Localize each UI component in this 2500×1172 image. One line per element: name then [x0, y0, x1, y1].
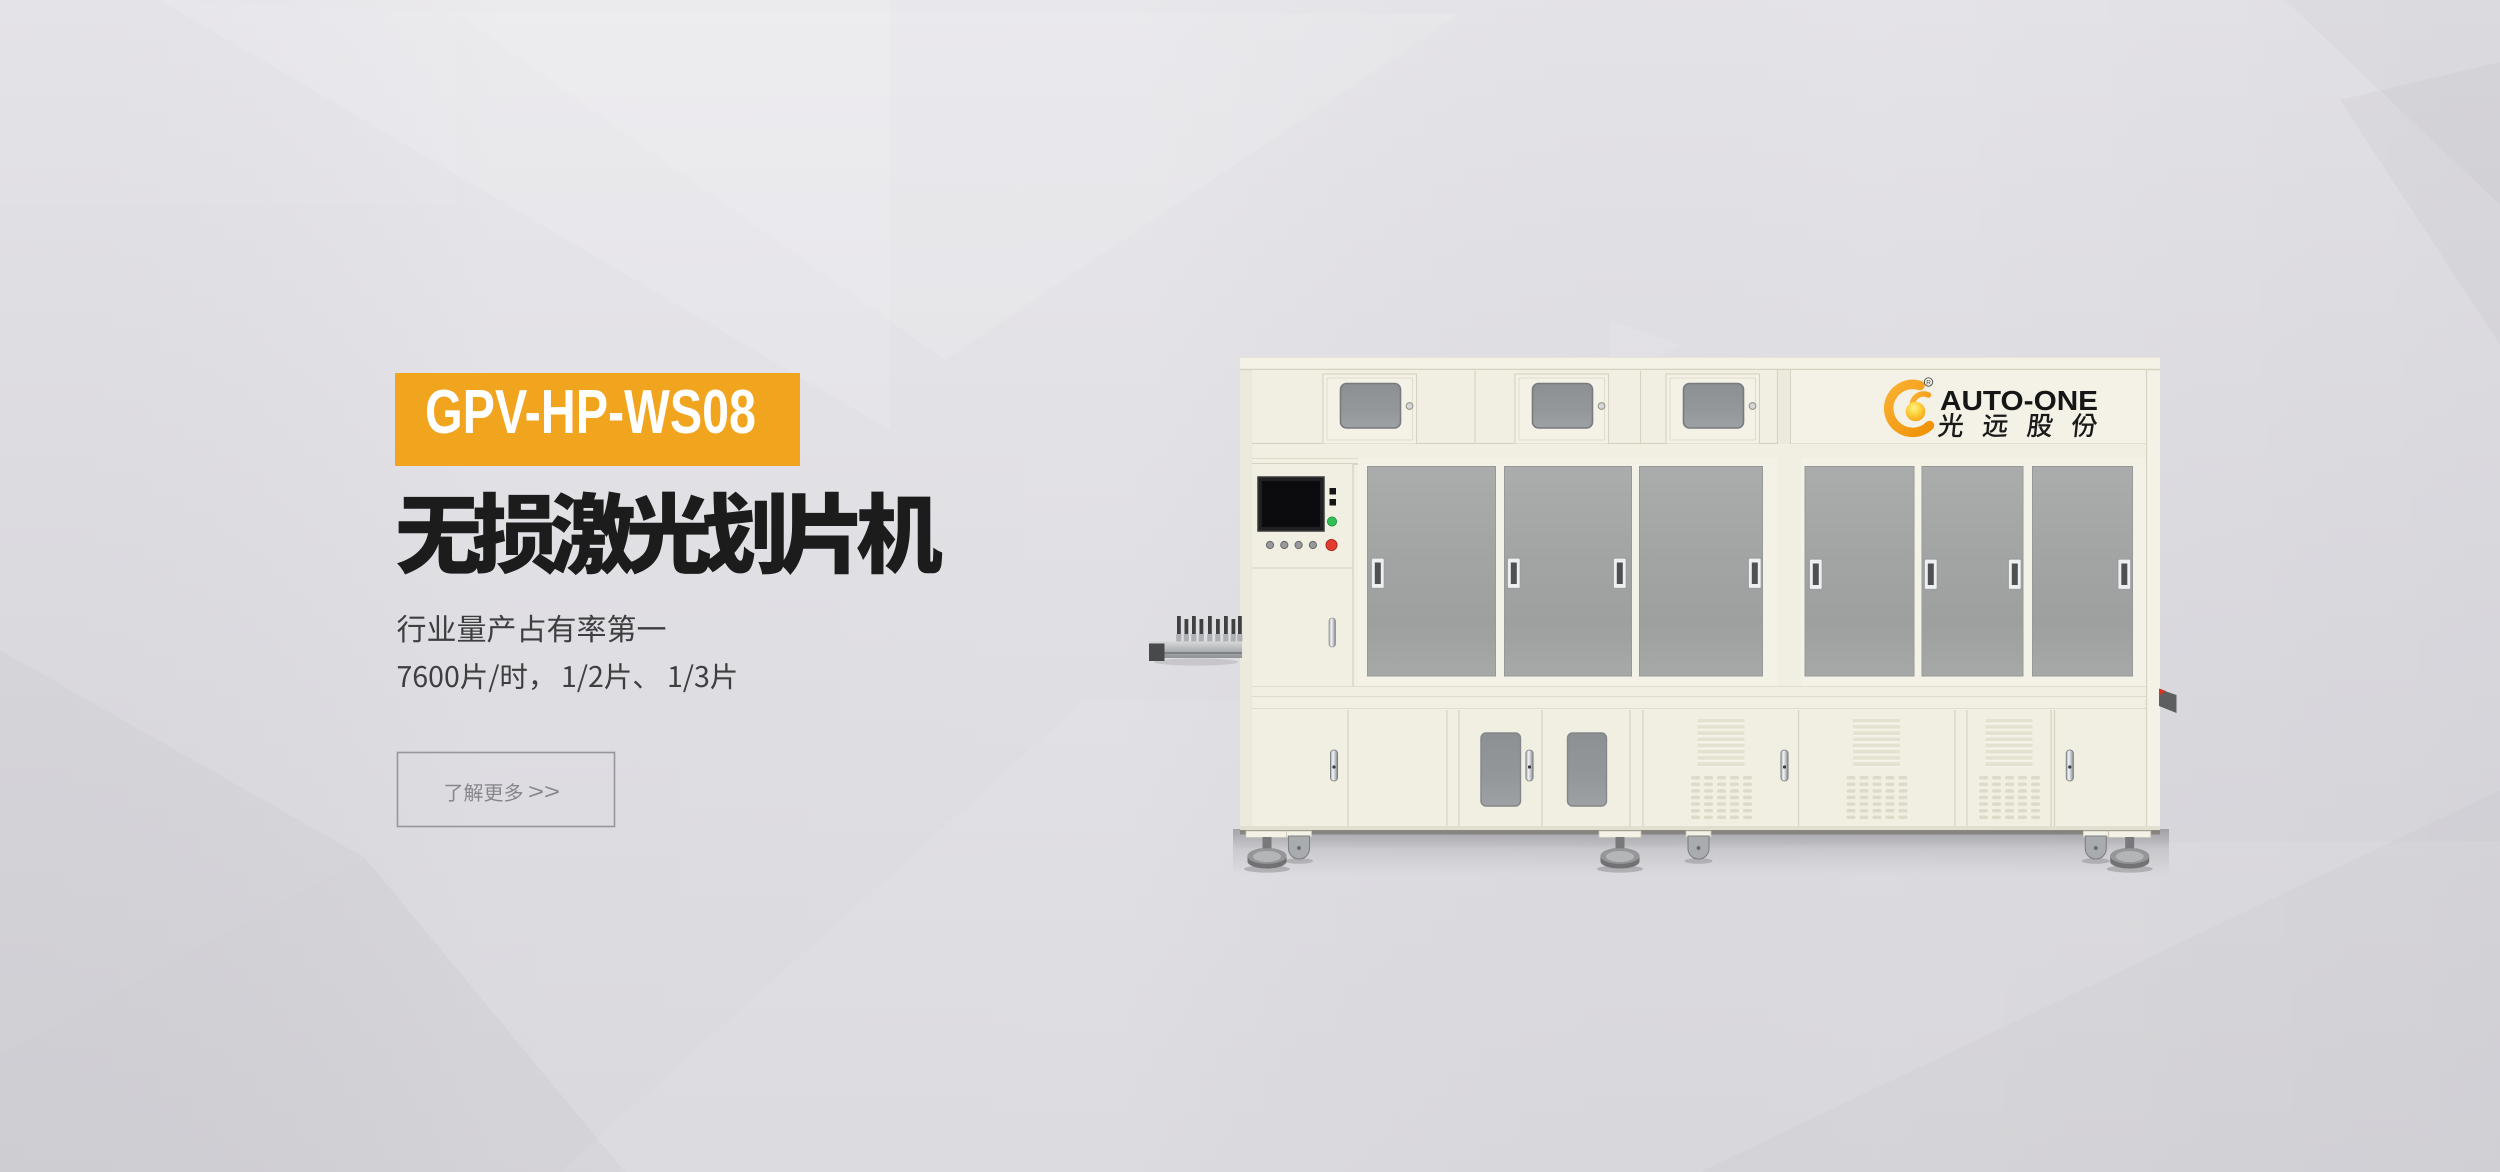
svg-text:R: R	[1926, 380, 1931, 387]
svg-text:>>: >>	[528, 779, 560, 804]
svg-text:AUTO-ONE: AUTO-ONE	[1940, 385, 2098, 416]
svg-text:GPV-HP-WS08: GPV-HP-WS08	[425, 378, 756, 447]
